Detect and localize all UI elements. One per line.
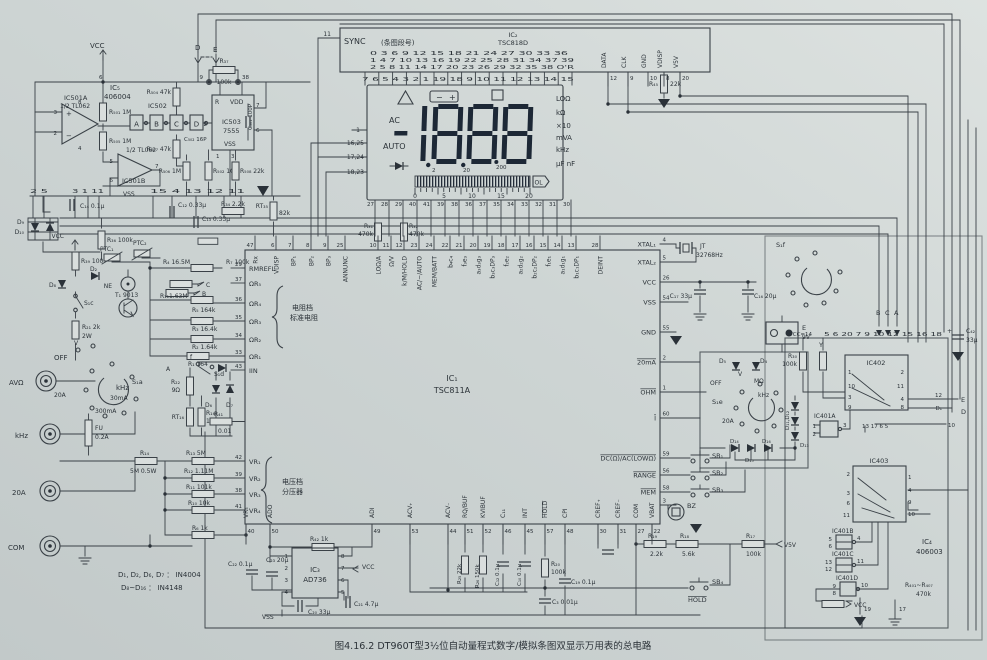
ic403-p6: 6 [847, 501, 851, 507]
circuit-schematic: 11 SYNC (条图段号) IC₂ TSC818D 0 3 6 9 12 15… [0, 0, 987, 660]
r14-ref: R₁₄ [140, 450, 150, 457]
ic3-pin3: 3 [285, 578, 289, 584]
lcd-seg-pin-num: 34 [507, 202, 514, 208]
ic1-right-pin-num: 56 [663, 469, 670, 475]
r26: R₂₆ 150k [475, 564, 481, 588]
ic1-top-pin-num: 13 [568, 243, 575, 249]
lcd-scale-num: 10 [468, 193, 476, 200]
ic501b-pin6: 6 [110, 178, 114, 184]
r20-ref: R₂₀ [551, 561, 561, 568]
ic1-bottom-pin-label: COM [633, 504, 640, 518]
ic1-bottom-pin-label: HOLD [542, 500, 549, 518]
figure-caption: 图4.16.2 DT960T型3½位自动量程式数字/模拟条图双显示万用表的总电路 [335, 640, 652, 652]
ic501a-pin2: 2 [54, 131, 58, 137]
ic1-top-pin-num: 19 [484, 243, 491, 249]
ic1-left-pin-num: 37 [235, 277, 242, 283]
s1a: S₁a [132, 378, 143, 386]
lcd-range-200: 200 [496, 165, 507, 171]
ic1-right-pin-label: VCC [642, 279, 656, 287]
ic501a-pin3: 3 [54, 110, 58, 116]
ic401b: IC401B [832, 528, 854, 535]
c13: C₁₃ 0.33µ [202, 216, 230, 223]
lcd-annunciator: kHz [556, 146, 569, 154]
c23: C₂₃ 20µ [266, 557, 289, 564]
r18-ref: R₁₈ [680, 533, 690, 540]
ic401c-p13: 13 [825, 560, 832, 566]
ic402-bottom-pins: 13 17 6 5 [862, 424, 889, 430]
ic1-top-pin-num: 22 [442, 243, 449, 249]
ic1-right-pin-label: I [654, 415, 656, 423]
c12: C₁₂ 0.33µ [178, 202, 206, 209]
ic1-bottom-pin-label: ADI [369, 507, 376, 518]
ic1-top-pin-label: Rx [253, 256, 260, 264]
ic1-right-pin-num: 2 [663, 356, 667, 362]
lcd-pin-c: 17,24 [347, 154, 364, 161]
c20: C₂₀ 33µ [308, 609, 331, 616]
ic1-bottom-pin-num: 50 [272, 529, 279, 535]
ic1-right-pin-num: 59 [663, 452, 670, 458]
ic1-left-pin-label: VR₄ [249, 507, 261, 515]
ic1-bottom-pin-num: 57 [547, 529, 554, 535]
ic1-top-pin-label: a₂d₂g₂ [518, 255, 525, 274]
bz-buzzer: BZ [687, 502, 696, 510]
ic3-pin5: 5 [341, 590, 345, 596]
lcd-annunciator: µF nF [556, 160, 575, 168]
res-note-1: 电阻档 [292, 303, 313, 312]
lcd-pin-b: 16,25 [347, 140, 364, 147]
d2: D₂ [90, 266, 98, 273]
lcd-range-2: 2 [432, 168, 436, 174]
ic3-vcc: VCC [362, 564, 374, 571]
ic2-part: TSC818D [497, 39, 528, 47]
ic1-right-pin-label: MEM [641, 489, 656, 497]
ic403: IC403 [870, 457, 889, 465]
ic503-pin6: 6 [256, 128, 260, 134]
ic3-pin4: 4 [285, 590, 289, 596]
ic1-left-pin-label: ΩR₅ [249, 280, 261, 288]
r10: R₁₀ 10k [188, 500, 211, 507]
jack-avohm: AVΩ [9, 379, 24, 387]
ic1-left-pin-label: RMREFL [249, 265, 275, 273]
s1c: S₁c [84, 300, 94, 307]
ic1-left-pin-label: ΩR₂ [249, 336, 261, 344]
ic2-seg-note: (条图段号) [381, 38, 415, 47]
ic1-right-pin-label: VSS [643, 299, 656, 307]
ic1-part: TSC811A [433, 386, 471, 395]
ic1-bottom-pin-label: KVIBUF [480, 496, 487, 518]
fu-value: 0.2A [95, 434, 110, 441]
c19: C₁₉ 0.1µ [571, 579, 595, 586]
lcd-scale-num: 5 [442, 193, 446, 200]
c14: C₁₄ 0.1µ [80, 203, 104, 210]
r18-value: 5.6k [682, 551, 696, 558]
ic1-top-pin-num: 17 [512, 243, 519, 249]
ic403-p1: 1 [908, 475, 912, 481]
lcd-annunciator: kΩ [556, 109, 566, 117]
ic1-right-pin-num: 4 [663, 238, 667, 244]
pos-khz: kHz [116, 384, 129, 392]
ic1-left-pin-num: 41 [235, 504, 242, 510]
ic2-serial-pin-label: DATA [601, 52, 608, 68]
ic1-top-pin-num: 28 [592, 243, 599, 249]
r45-ref: R₄₅ [649, 81, 659, 88]
svg-text:−: − [66, 132, 72, 140]
lcd-seg-pin-num: 39 [437, 202, 444, 208]
ic1-right-pin-label: 20mA [637, 359, 657, 367]
lcd-ol: OL [535, 180, 544, 187]
c22: C₂₂ 0.1µ [228, 561, 252, 568]
lcd-annunciator: mVA [556, 134, 572, 142]
r31-value: 470k [358, 231, 373, 238]
ptc1: PTC₁ [100, 246, 114, 253]
out-12: 12 [935, 393, 942, 399]
ic1-right-pin-label: OHM [640, 389, 656, 397]
ic1-right-pin-num: 26 [663, 276, 670, 282]
ic503-r: R [215, 99, 219, 106]
r36: R₃₆ 100k [107, 237, 133, 244]
ic501b-pin5: 5 [110, 159, 114, 165]
r37-ref: R₃₇ [220, 58, 230, 65]
ic1-top-pin-num: 12 [396, 243, 403, 249]
ic1-bottom-pin-label: INT [522, 508, 529, 518]
gate-d: D [194, 121, 199, 129]
r42: R₄₂ 1k [310, 536, 329, 543]
r2: R₂ 1.64k [192, 344, 218, 351]
ic1-bottom-pin-num: 44 [450, 529, 457, 535]
ic401a: IC401A [814, 413, 836, 420]
ne-lamp: NE [104, 283, 112, 290]
c16: C₁₆ 20µ [754, 293, 777, 300]
ic5-pins-3: 15 4 13 12 11 [150, 189, 245, 195]
out-d: D [961, 408, 966, 416]
ic1-top-pin-label: b₄c₄ [448, 255, 455, 268]
c-label: C [885, 309, 890, 317]
ic1-top-pin-label: ANNUNC [343, 256, 350, 282]
r20-value: 100k [551, 569, 566, 576]
ic1-top-pin-label: DEINT [598, 256, 605, 275]
lcd-seg-pin-num: 30 [563, 202, 570, 208]
ic1-left-pin-label: VR₂ [249, 475, 261, 483]
lcd-seg-pin-num: 38 [451, 202, 458, 208]
r30-ref: R₃₀ [788, 353, 798, 360]
ic1-top-pin-num: 21 [456, 243, 463, 249]
ic402-p4: 4 [901, 397, 905, 403]
ic2-serial-pin-label: CLK [621, 55, 628, 68]
r21-ref: R₂₁ 2k [82, 324, 101, 331]
lcd-scale-num: 15 [497, 193, 505, 200]
ic501a-part: 1/2 TL062 [60, 103, 90, 110]
r11b: R₁₁ 101k [186, 484, 212, 491]
ic1-top-pin-num: 7 [288, 243, 292, 249]
d16: D₁₆ [762, 439, 771, 445]
ic401a-p3: 3 [843, 423, 847, 429]
d-label: D [195, 44, 200, 52]
ic1-top-pin-label: Ω/V [389, 255, 396, 267]
vcc-label: VCC [90, 42, 105, 50]
lcd-ac: AC [389, 116, 400, 125]
ic1-right-pin-label: DC(Ω)/AC(LOWΩ) [600, 455, 656, 463]
ic5-name: IC₅ [110, 84, 120, 92]
ic403-p10: 10 [908, 512, 915, 518]
paper-background [0, 0, 987, 660]
gate-b: B [154, 121, 159, 129]
pos-30ma: 30mA [110, 395, 128, 402]
ic4-name: IC₄ [922, 538, 932, 546]
ic1-right-pin-label: RANGE [633, 472, 656, 480]
lcd-seg-pin-num: 29 [395, 202, 402, 208]
d6: D₆ [205, 402, 213, 409]
d10: D₁₀ [15, 229, 25, 236]
ic1-bottom-pin-num: 40 [248, 529, 255, 535]
lcd-seg-pin-num: 35 [493, 202, 500, 208]
d7: D₇ [226, 402, 234, 409]
ic1-bottom-pin-num: 49 [374, 529, 381, 535]
ic1-top-pin-num: 11 [383, 243, 390, 249]
ic401c-p11: 11 [857, 559, 864, 565]
jack-20a: 20A [12, 489, 26, 497]
ic1-left-pin-num: 42 [235, 455, 242, 461]
lcd-scale-num: 20 [525, 193, 533, 200]
ic501b-part: 1/2 TL062 [126, 147, 156, 154]
ic503-pin7: 7 [256, 103, 260, 109]
ic1-top-pin-label: LOΩ/A [376, 255, 383, 274]
ic1-top-pin-num: 24 [426, 243, 433, 249]
out-d1: D₁ [936, 406, 942, 412]
pin6: 6 [99, 75, 103, 81]
s1e-off: OFF [710, 380, 722, 387]
ic3-pin8: 8 [341, 554, 345, 560]
ic1-top-pin-num: 47 [247, 243, 254, 249]
r4: R₄ 16.5M [163, 259, 190, 266]
ic1-bottom-pin-num: 22 [654, 529, 661, 535]
lcd-annunciator: ×10 [556, 122, 571, 130]
ic503-pin2: 2 [204, 122, 208, 128]
d11-d12: D₁₁,D₁₂ [785, 411, 791, 430]
lcd-seg-pin-num: 28 [381, 202, 388, 208]
ic1-left-pin-label: ΩR₄ [249, 300, 261, 308]
c42-ref: C₄₂ [966, 328, 976, 335]
div-note-1: 电压档 [282, 477, 303, 486]
ic403-p11: 11 [843, 513, 850, 519]
ic1-left-pin-num: 43 [235, 364, 242, 370]
r504: R₅₀₄ 47k [147, 89, 172, 96]
ic1-top-pin-label: b₃c₃DP₃ [490, 255, 497, 278]
r12: R₁₂ 1.11M [184, 468, 213, 475]
c17: C₁₇ 33µ [670, 293, 693, 300]
ic1-left-pin-label: IIN [249, 367, 258, 375]
ic1-top-pin-num: 10 [370, 243, 377, 249]
gate-a: A [134, 121, 139, 129]
ic402-p11: 11 [897, 384, 904, 390]
r3: R₃ 16.4k [192, 326, 218, 333]
sb2-button: SB₂ [712, 469, 724, 477]
ic1-top-pin-label: MEM/BATT [432, 256, 439, 287]
vcc-row: VCC=14 [789, 332, 813, 338]
ic503-pin1: 1 [216, 154, 220, 160]
jt-crystal-freq: 32768Hz [696, 252, 723, 259]
ic1-top-pin-num: 6 [271, 243, 275, 249]
ic1-left-pin-num: 38 [235, 488, 242, 494]
pos-off: OFF [54, 354, 68, 362]
ic3-pin6: 6 [341, 578, 345, 584]
d15: D₁₅ [745, 458, 754, 464]
lcd-pin-d: 18,23 [347, 169, 364, 176]
ic1-left-pin-num: 35 [235, 315, 242, 321]
ic503-vdd: VDD [230, 99, 244, 106]
r22-ref: R₂₂ [171, 379, 181, 386]
c12b: C₁₂ 0.1µ [495, 563, 501, 586]
y-label: Y [818, 341, 823, 349]
pin17: 17 [899, 607, 906, 613]
ic1-top-pin-num: 15 [540, 243, 547, 249]
t1: T₁ 9013 [114, 292, 138, 299]
hold-label: HOLD [688, 596, 707, 604]
ic502-label: IC502 [148, 102, 167, 110]
pin9: 9 [200, 75, 204, 81]
battery-plus: + [449, 93, 456, 102]
ic1-bottom-pin-label: VBAT [649, 502, 656, 518]
c501: C₅₀₁ 100P [248, 103, 254, 130]
fu-ref: FU [95, 425, 103, 432]
c42-plus: + [947, 328, 952, 335]
ptc2: PTC₂ [133, 240, 147, 247]
ic403-p3: 3 [847, 491, 851, 497]
ic2-serial-pin-num: 8 [666, 76, 670, 82]
lcd-bargraph [415, 176, 530, 187]
gate-c: C [174, 121, 179, 129]
diode-note-1: D₁, D₂, D₆, D₇ ： IN4004 [118, 571, 201, 579]
ic2-serial-pin-num: 20 [682, 76, 689, 82]
ic501a-pin4: 4 [78, 146, 82, 152]
ic1-right-pin-num: 5 [663, 256, 667, 262]
battery-e: E [802, 324, 806, 332]
ic3-pin7: 7 [341, 566, 345, 572]
d13: D₁₃ [800, 443, 809, 449]
ic1-bottom-pin-num: 51 [467, 529, 474, 535]
ic2-grid-row2: 1 4 7 10 13 16 19 22 25 28 31 34 37 39 [370, 58, 575, 64]
ic1-left-pin-label: VR₃ [249, 491, 261, 499]
r501: R₅₀₁ 1M [109, 109, 131, 116]
ic1-left-pin-label: VR₁ [249, 458, 261, 466]
ic403-p2: 2 [847, 472, 851, 478]
ic1-top-pin-label: BP₃ [326, 255, 333, 266]
ic1-right-pin-num: 54 [663, 296, 670, 302]
ic3-pin2: 2 [285, 566, 289, 572]
r401-value: 470k [916, 591, 931, 598]
ic1-top-pin-num: 9 [323, 243, 327, 249]
d5: D₅ [719, 358, 727, 365]
ic1-bottom-pin-label: ACV₋ [445, 503, 452, 518]
ic1-bottom-pin-num: 48 [567, 529, 574, 535]
r11: R₁₁1.63M [160, 293, 188, 300]
ic1-bottom-pin-num: 53 [412, 529, 419, 535]
r37-value: 100k [217, 79, 232, 86]
c21: C₂₁ 4.7µ [354, 601, 378, 608]
r30-value: 100k [782, 361, 797, 368]
diode-note-2: D₈~D₁₆ ： IN4148 [121, 584, 183, 592]
ic2-grid-row3: 2 5 8 11 14 17 20 23 26 29 32 35 38 O'R [370, 65, 574, 71]
ic1-top-pin-label: b₁c₁DP₁ [574, 255, 581, 278]
ic1-bottom-pin-label: VR₅ [243, 507, 250, 518]
ic1-top-pin-label: k/M/HOLD [402, 256, 409, 286]
ic401d-p8: 8 [833, 591, 837, 597]
ic2-serial-pin-label: GND [641, 54, 648, 68]
ic2-serial-pin-label: V5V [673, 55, 680, 68]
vcc2-label: VCC [52, 233, 64, 240]
lcd-seg-pin-num: 40 [409, 202, 416, 208]
jt-crystal-ref: JT [699, 243, 706, 250]
ic1-top-pin-num: 16 [526, 243, 533, 249]
ic503-name: IC503 [222, 118, 241, 126]
ic1-right-pin-num: 3 [663, 499, 667, 505]
ic402-p1: 1 [848, 370, 852, 376]
ic1-right-pin-num: 60 [663, 412, 670, 418]
arrow-c: C [206, 282, 210, 289]
rt35-value: 82k [279, 210, 291, 217]
pos-300ma: 300mA [95, 408, 117, 415]
ic401d-p10: 10 [861, 583, 868, 589]
ic1-top-pin-label: f₃e₃ [462, 255, 469, 266]
ic1-top-pin-label: BP₂ [309, 255, 316, 266]
ic501b-ref: IC501B [122, 177, 145, 185]
ic1-top-pin-label: BP₁ [291, 255, 298, 266]
b-label: B [876, 309, 880, 317]
battery-minus: − [436, 93, 443, 102]
rt35-ref: RT₃₅ [256, 203, 269, 210]
ic401b-p6: 6 [829, 544, 833, 550]
r39: R₃₉ 100 [81, 258, 104, 265]
out-e: E [961, 396, 965, 404]
ic1-left-pin-label: ΩR₁ [249, 353, 261, 361]
ic2-sync-label: SYNC [344, 37, 366, 46]
rt16: RT₁₆ [172, 414, 185, 421]
ic2-bottom-pins: 7 6 5 4 3 2 1 19 18 9 10 11 12 13 14 15 [362, 77, 575, 83]
s1d: S₁d [214, 371, 224, 378]
sb4-button: SB₄ [712, 578, 724, 586]
r41-ref: R₄₁ [214, 411, 224, 418]
ic1-bottom-pin-num: 45 [527, 529, 534, 535]
r41-value: 0.01 [218, 428, 232, 435]
ic2-serial-pin-num: 10 [650, 76, 657, 82]
ic5-part: 406004 [104, 93, 131, 101]
d8: D₈ [49, 282, 57, 289]
ic1-right-pin-label: GND [641, 329, 656, 337]
ic2-grid-row1: 0 3 6 9 12 15 18 21 24 27 30 33 36 [370, 51, 569, 57]
ic403-p4: 4 [908, 488, 912, 494]
ic503-part: 7555 [223, 127, 240, 135]
ic1-left-pin-num: 34 [235, 333, 242, 339]
ic3-vss: VSS [262, 614, 274, 621]
r34: R₃₄ 2.2k [221, 201, 245, 208]
ic1-top-pin-label: a₁d₁g₁ [560, 255, 567, 274]
ic503-pin3: 3 [231, 154, 235, 160]
ic402-p3: 3 [848, 395, 852, 401]
s1f: S₁f [776, 241, 786, 249]
ic1-bottom-pin-label: CREF₊ [595, 499, 602, 518]
c502-label: C₅₀₂ 16P [184, 137, 207, 143]
lcd-range-20: 20 [463, 168, 470, 174]
lcd-seg-pin-num: 27 [367, 202, 374, 208]
ic1-bottom-pin-label: CPI [562, 508, 569, 518]
ic1-bottom-pin-num: 46 [505, 529, 512, 535]
ic1-top-pin-num: 20 [470, 243, 477, 249]
jack-com: COM [8, 544, 24, 552]
ic501a-pin8: 8 [78, 100, 82, 106]
ic5-pins-2: 3 1 11 [72, 189, 104, 195]
d14: D₁₄ [730, 439, 739, 445]
ic2-serial-pin-label: VDISP [657, 50, 664, 68]
r17-value: 100k [746, 551, 761, 558]
